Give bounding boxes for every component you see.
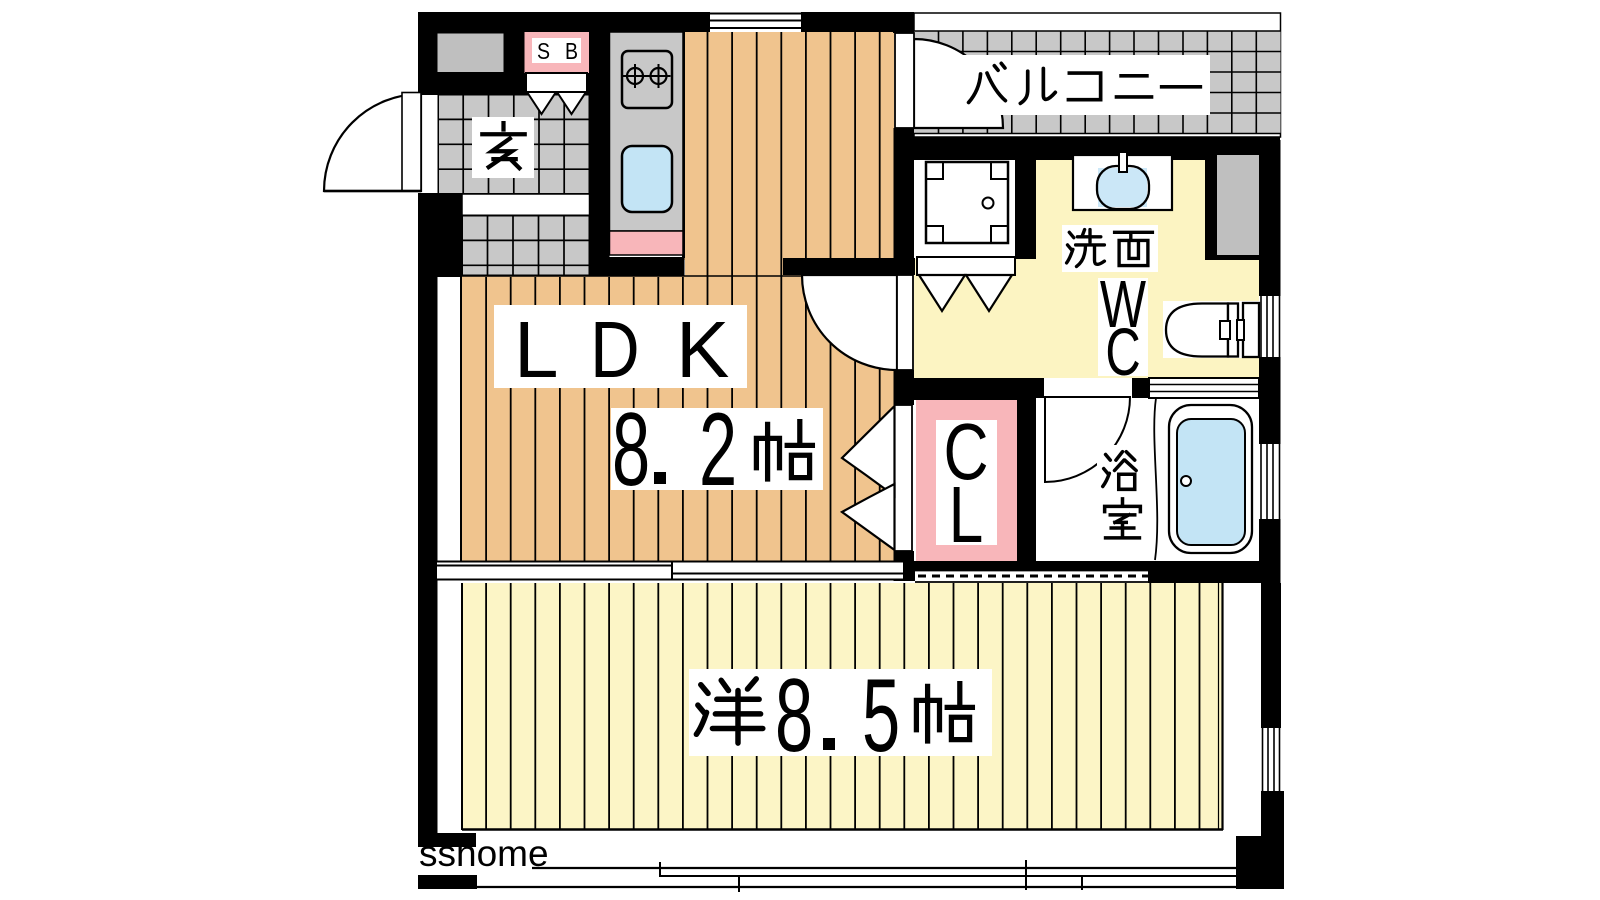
svg-text:K: K [676,305,729,394]
svg-text:8: 8 [612,391,650,508]
svg-text:D: D [590,304,640,394]
svg-text:5: 5 [862,657,900,774]
svg-text:sshome: sshome [419,833,549,874]
svg-text:L: L [514,305,559,394]
svg-text:C: C [1105,316,1140,390]
svg-text:B: B [565,39,578,65]
svg-text:8: 8 [775,657,813,774]
svg-text:2: 2 [699,391,737,508]
svg-text:S: S [537,39,550,65]
svg-text:L: L [949,471,984,560]
